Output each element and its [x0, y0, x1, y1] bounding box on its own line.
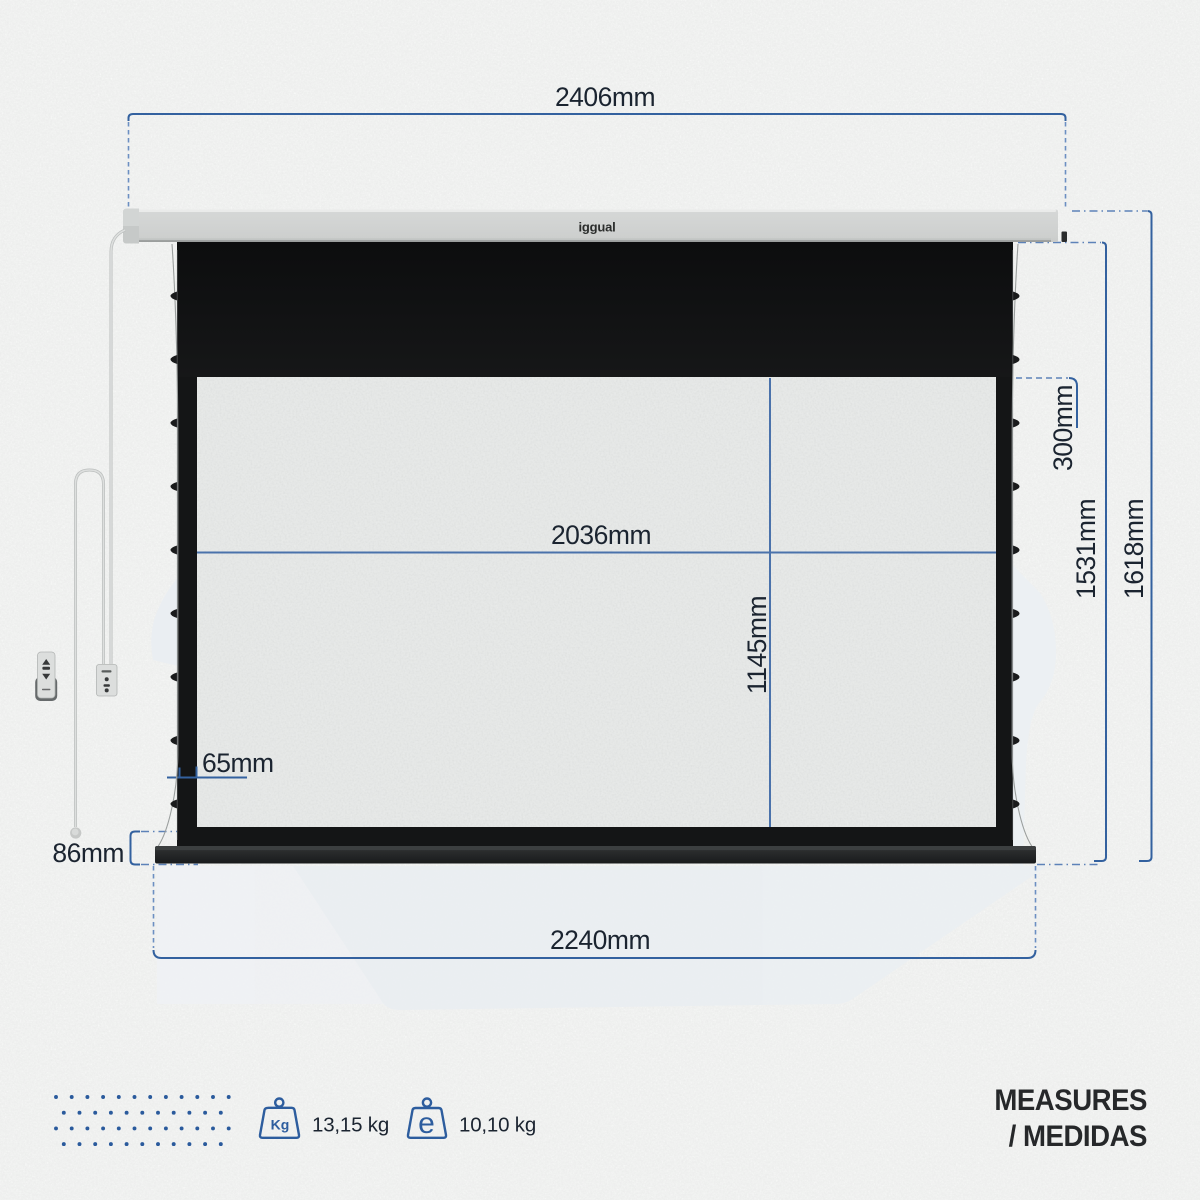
svg-text:Kg: Kg	[271, 1117, 290, 1133]
svg-text:/ MEDIDAS: / MEDIDAS	[1009, 1120, 1148, 1153]
svg-text:1618mm: 1618mm	[1119, 499, 1149, 599]
svg-text:65mm: 65mm	[202, 748, 274, 778]
svg-text:86mm: 86mm	[52, 838, 124, 868]
svg-text:13,15 kg: 13,15 kg	[312, 1114, 389, 1137]
svg-text:2406mm: 2406mm	[555, 82, 655, 112]
svg-text:iggual: iggual	[578, 220, 615, 235]
svg-text:MEASURES: MEASURES	[994, 1084, 1147, 1117]
svg-text:300mm: 300mm	[1048, 385, 1078, 471]
svg-text:2036mm: 2036mm	[551, 520, 651, 550]
svg-text:10,10 kg: 10,10 kg	[459, 1114, 536, 1137]
svg-text:e: e	[418, 1107, 435, 1140]
svg-text:2240mm: 2240mm	[550, 925, 650, 955]
svg-text:1145mm: 1145mm	[742, 596, 772, 694]
svg-text:1531mm: 1531mm	[1071, 499, 1101, 599]
